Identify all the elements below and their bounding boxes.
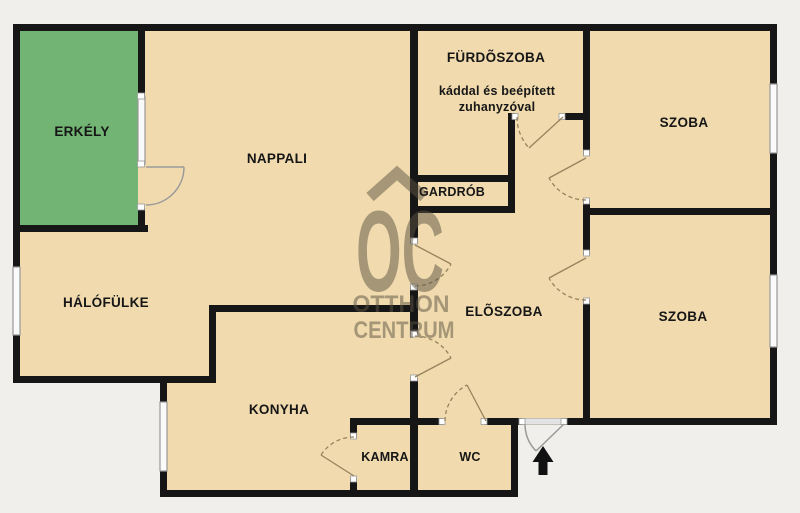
wall-hall-szoba-a — [583, 24, 590, 155]
wall-outer-bottom — [160, 490, 518, 497]
watermark-centrum-text: CENTRUM — [354, 317, 455, 344]
wall-balcony-bottom — [13, 225, 148, 232]
label-gardrob: GARDRÓB — [419, 184, 485, 199]
window-halofulke — [13, 267, 20, 335]
wall-gardrob-top — [410, 175, 515, 182]
wall-wc-right — [511, 418, 518, 497]
wall-step — [209, 305, 216, 383]
wall-outer-left-lower — [13, 335, 20, 383]
wall-outer-top — [13, 24, 777, 31]
floorplan-page: OC OTTHON CENTRUM ERKÉLY NAPPALI FÜRDÕSZ… — [0, 0, 800, 513]
label-nappali: NAPPALI — [247, 151, 307, 166]
wall-spine-lower — [410, 378, 418, 497]
entrance-threshold — [524, 419, 563, 425]
label-halofulke: HÁLÓFÜLKE — [63, 295, 149, 310]
label-szoba-top: SZOBA — [660, 115, 709, 130]
label-szoba-bottom: SZOBA — [659, 309, 708, 324]
wall-hall-szoba-c — [583, 300, 590, 425]
door-entrance-panel — [536, 424, 564, 451]
label-erkely: ERKÉLY — [54, 124, 109, 139]
wall-szoba-divider — [583, 208, 777, 215]
wall-hall-szoba-b — [583, 200, 590, 255]
wall-south-c — [565, 418, 777, 425]
wall-halofulke-bottom — [13, 376, 216, 383]
label-wc: WC — [459, 450, 480, 464]
wall-konyha-left-upper — [160, 376, 167, 402]
floorplan-svg: OC OTTHON CENTRUM ERKÉLY NAPPALI FÜRDÕSZ… — [0, 0, 800, 513]
label-konyha: KONYHA — [249, 402, 309, 417]
label-furdoszoba-note1: káddal és beépített — [439, 84, 556, 98]
wall-south-a — [350, 418, 443, 425]
watermark-otthon-text: OTTHON — [353, 291, 450, 318]
window-balcony — [138, 97, 145, 164]
label-eloszoba: ELÕSZOBA — [465, 304, 542, 319]
label-furdoszoba: FÜRDÕSZOBA — [447, 50, 545, 65]
wall-south-b — [485, 418, 522, 425]
window-konyha — [160, 402, 167, 471]
wall-corridor-vertical — [508, 113, 515, 213]
label-furdoszoba-note2: zuhanyzóval — [459, 100, 536, 114]
label-kamra: KAMRA — [361, 450, 409, 464]
door-entrance-arc — [525, 424, 536, 451]
wall-balcony-right-upper — [138, 24, 145, 97]
window-szoba-bottom — [770, 275, 777, 347]
window-szoba-top — [770, 84, 777, 153]
